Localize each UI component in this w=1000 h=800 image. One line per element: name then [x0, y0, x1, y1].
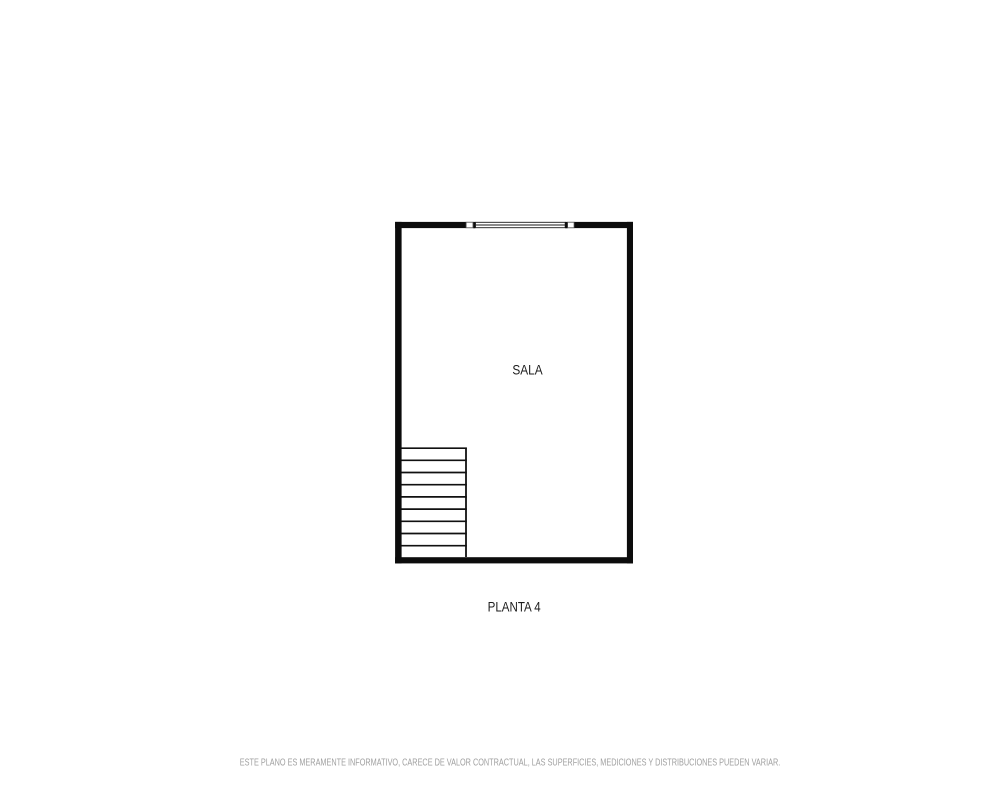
svg-text:ESTE PLANO ES MERAMENTE INFORM: ESTE PLANO ES MERAMENTE INFORMATIVO, CAR… [240, 756, 781, 768]
svg-text:PLANTA 4: PLANTA 4 [488, 600, 541, 615]
svg-text:SALA: SALA [512, 363, 543, 378]
